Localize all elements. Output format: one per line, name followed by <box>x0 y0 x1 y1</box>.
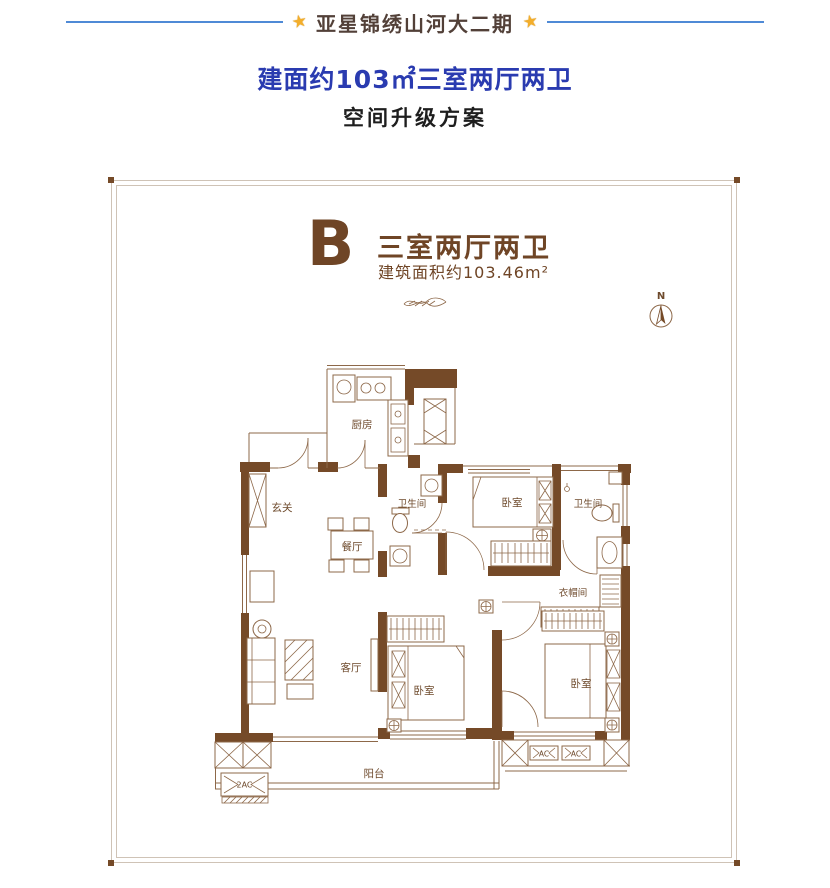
label-bedroom-bottom-center: 卧室 <box>414 684 435 697</box>
label-dining: 餐厅 <box>342 540 363 553</box>
floor-plan-drawing: 厨房 玄关 餐厅 卫生间 卧室 卫生间 衣帽间 客厅 卧室 卧室 阳台 2AC … <box>180 348 660 808</box>
label-ac-1: AC <box>539 750 549 759</box>
label-bedroom-top: 卧室 <box>502 496 523 509</box>
star-icon: ★ <box>290 12 308 32</box>
frame-corner <box>734 860 740 866</box>
project-title: 亚星锦绣山河大二期 <box>316 8 514 37</box>
entry-closet <box>249 474 274 602</box>
unit-area-text: 建筑面积约103.46m² <box>378 259 549 283</box>
unit-letter: B <box>307 213 354 275</box>
room-labels: 厨房 玄关 餐厅 卫生间 卧室 卫生间 衣帽间 客厅 卧室 卧室 阳台 2AC … <box>236 418 602 790</box>
floorplan-poster: { "header": { "project_title": "亚星锦绣山河大二… <box>0 0 830 888</box>
frame-corner <box>108 177 114 183</box>
bathroom-center-fixtures <box>390 475 442 566</box>
label-balcony: 阳台 <box>364 767 385 780</box>
label-ac-2: AC <box>571 750 581 759</box>
frame-corner <box>108 860 114 866</box>
frame-corner <box>734 177 740 183</box>
header-line-right <box>547 21 764 23</box>
star-icon: ★ <box>521 12 539 32</box>
label-entry: 玄关 <box>272 501 293 514</box>
label-kitchen: 厨房 <box>352 418 373 431</box>
label-bathroom-center: 卫生间 <box>398 498 427 510</box>
compass-icon: N <box>644 288 678 332</box>
label-bedroom-bottom-right: 卧室 <box>571 677 592 690</box>
bathroom-right-fixtures <box>565 472 623 568</box>
bedroom-bottom-right-furniture <box>542 611 620 732</box>
area-subtitle: 建面约103㎡三室两厅两卫 <box>0 60 830 96</box>
compass-north-label: N <box>657 291 665 302</box>
label-2ac: 2AC <box>236 781 252 790</box>
windows-and-thin-walls <box>215 366 630 790</box>
upgrade-plan-heading: 空间升级方案 <box>0 102 830 132</box>
label-cloakroom: 衣帽间 <box>559 587 588 599</box>
swash-ornament-icon <box>401 293 449 313</box>
label-living: 客厅 <box>341 661 362 674</box>
header-line-left <box>66 21 283 23</box>
bedroom-top-furniture <box>473 477 553 566</box>
label-bathroom-right: 卫生间 <box>574 498 603 510</box>
header-banner: ★ 亚星锦绣山河大二期 ★ <box>0 10 830 34</box>
bedroom-bottom-center-furniture <box>387 600 493 732</box>
